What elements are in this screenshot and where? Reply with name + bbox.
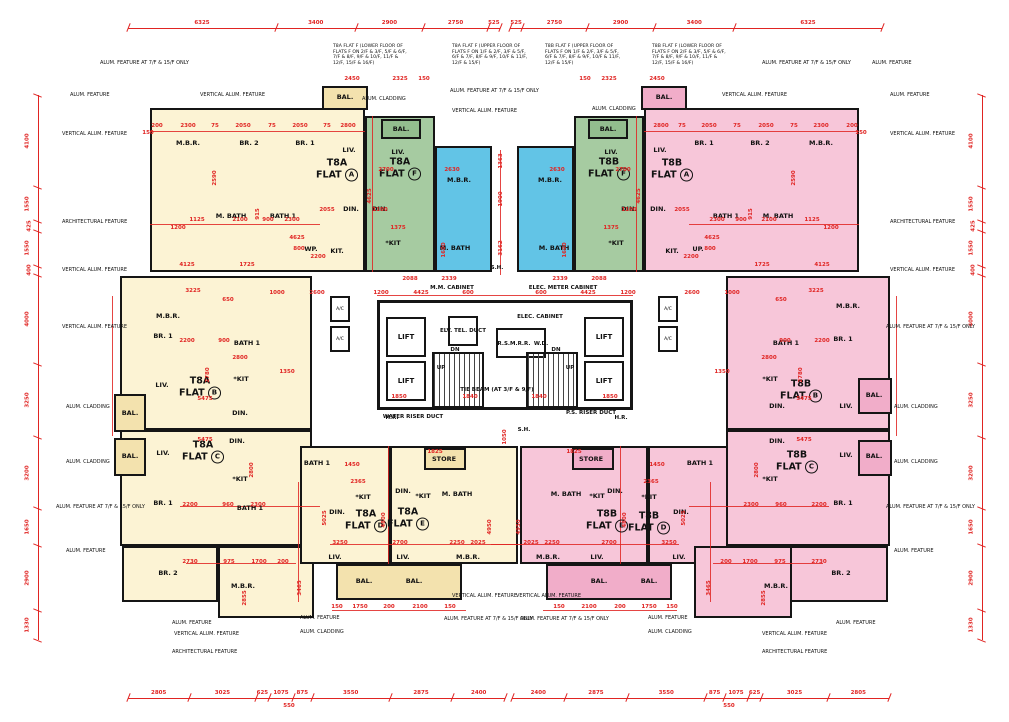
edge-dim-segment: 2400 bbox=[512, 684, 565, 699]
room-label: BAL. bbox=[591, 577, 608, 585]
dimension-number: 2055 bbox=[319, 207, 334, 213]
core-label: TIE BEAM (AT 3/F & 9/F) bbox=[460, 387, 533, 393]
feature-note: ALUM. FEATURE AT 7/F & 15/F ONLY bbox=[520, 616, 609, 622]
edge-dim-value: 875 bbox=[297, 690, 308, 696]
dimension-line bbox=[644, 131, 859, 132]
core-label: W.D. bbox=[534, 341, 548, 347]
dimension-number: 3250 bbox=[661, 540, 676, 546]
dimension-number: 2800 bbox=[340, 123, 355, 129]
edge-dim-segment: 2805 bbox=[828, 684, 889, 699]
dimension-line bbox=[112, 296, 113, 436]
feature-note: ALUM. FEATURE bbox=[300, 615, 340, 621]
room-label: BAL. bbox=[337, 93, 354, 101]
feature-note: VERTICAL ALUM. FEATURE bbox=[452, 108, 517, 114]
dimension-number: 4625 bbox=[367, 188, 373, 203]
dimension-number: 2088 bbox=[591, 276, 606, 282]
room-label: BAL. bbox=[356, 577, 373, 585]
dimension-number: 2200 bbox=[683, 254, 698, 260]
edge-dim-value: 2900 bbox=[613, 20, 628, 26]
edge-dim-segment: 400 bbox=[24, 266, 39, 275]
ac-unit-box: A/C bbox=[330, 326, 350, 352]
dimension-number: 1375 bbox=[390, 225, 405, 231]
feature-note: ARCHITECTURAL FEATURE bbox=[890, 219, 955, 225]
dimension-number: 1350 bbox=[714, 369, 729, 375]
edge-dim-segment: 2875 bbox=[565, 684, 628, 699]
room-label: DIN. bbox=[232, 409, 248, 417]
feature-note: ALUM. CLADDING bbox=[300, 629, 344, 635]
flat-name: T8B bbox=[776, 451, 818, 461]
edge-dim-segment: 3400 bbox=[654, 14, 734, 29]
edge-dim-segment: 2805 bbox=[128, 684, 189, 699]
room-label: BAL. bbox=[393, 125, 410, 133]
dimension-number: 150 bbox=[142, 130, 153, 136]
dimension-number: 150 bbox=[666, 604, 677, 610]
edge-dim-segment: 1075 bbox=[724, 684, 748, 699]
dimension-number: 975 bbox=[223, 559, 234, 565]
feature-note: VERTICAL ALUM. FEATURE bbox=[722, 92, 787, 98]
feature-note: ALUM. FEATURE bbox=[70, 92, 110, 98]
feature-note: ALUM. FEATURE AT 7/F & 15/F ONLY bbox=[762, 60, 851, 66]
dimension-number: 650 bbox=[775, 297, 786, 303]
dimension-number: 2050 bbox=[701, 123, 716, 129]
dimension-number: 75 bbox=[678, 123, 686, 129]
dimension-number: 2590 bbox=[791, 170, 797, 185]
room-label: LIV. bbox=[342, 146, 355, 154]
room-label: LIV. bbox=[590, 553, 603, 561]
room-label: BR. 1 bbox=[833, 335, 852, 343]
edge-dim-segment: 625 bbox=[256, 684, 270, 699]
edge-dim-segment: 2900 bbox=[356, 14, 424, 29]
dimension-line bbox=[491, 544, 679, 545]
edge-dim-value: 4000 bbox=[24, 312, 30, 327]
dimension-number: 2339 bbox=[552, 276, 567, 282]
dimension-number: 1125 bbox=[189, 217, 204, 223]
feature-note: ALUM. FEATURE AT 7/F & 15/F ONLY bbox=[886, 504, 975, 510]
room-label: LIV. bbox=[391, 148, 404, 156]
edge-dimension-strip: 4100155042515504004000325032001650290013… bbox=[24, 95, 38, 640]
dimension-number: 2450 bbox=[344, 76, 359, 82]
feature-note: VERTICAL ALUM. FEATURE bbox=[62, 324, 127, 330]
edge-dim-value: 1550 bbox=[968, 241, 974, 256]
dimension-number: 1000 bbox=[269, 290, 284, 296]
room-label: BAL. bbox=[122, 409, 139, 417]
edge-dim-value: 625 bbox=[749, 690, 760, 696]
room-label: BR. 2 bbox=[750, 139, 769, 147]
room-label: M.B.R. bbox=[156, 312, 180, 320]
feature-note: VERTICAL ALUM. FEATURE bbox=[516, 593, 581, 599]
dimension-number: 2590 bbox=[212, 170, 218, 185]
dimension-number: 2250 bbox=[544, 540, 559, 546]
edge-dim-value: 6325 bbox=[194, 20, 209, 26]
edge-dim-value: 1330 bbox=[968, 617, 974, 632]
feature-note: ALUM. FEATURE bbox=[648, 615, 688, 621]
ac-unit-box: A/C bbox=[658, 326, 678, 352]
edge-dim-value: 4100 bbox=[24, 133, 30, 148]
ac-unit-box: A/C bbox=[658, 296, 678, 322]
room-label: UP. bbox=[692, 245, 703, 253]
dimension-number: 1450 bbox=[649, 462, 664, 468]
feature-note: ALUM. FEATURE bbox=[894, 548, 934, 554]
dimension-number: 1375 bbox=[603, 225, 618, 231]
dimension-number: 1100 bbox=[372, 207, 387, 213]
room-label: *KIT bbox=[355, 493, 370, 501]
dimension-line bbox=[330, 544, 518, 545]
flat-f-floor-note: T8B FLAT F (LOWER FLOOR OF FLATS F ON 2/… bbox=[652, 44, 730, 67]
dimension-number: 75 bbox=[211, 123, 219, 129]
edge-dim-segment: 2900 bbox=[968, 545, 983, 610]
room-label: LIV. bbox=[839, 451, 852, 459]
dimension-number: 2200 bbox=[179, 338, 194, 344]
feature-note: ALUM. FEATURE bbox=[836, 620, 876, 626]
core-label: R.S.M.R.R. bbox=[498, 341, 531, 347]
dimension-number: 550 bbox=[283, 703, 294, 709]
dimension-number: 1000 bbox=[724, 290, 739, 296]
dimension-number: 200 bbox=[277, 559, 288, 565]
edge-dim-value: 2750 bbox=[448, 20, 463, 26]
dimension-number: 2630 bbox=[444, 167, 459, 173]
edge-dimension-strip: 4100155042515504004000325032001650290013… bbox=[968, 95, 982, 640]
edge-dim-value: 3200 bbox=[24, 465, 30, 480]
edge-dim-segment: 3550 bbox=[627, 684, 705, 699]
edge-dim-segment: 1550 bbox=[968, 187, 983, 222]
dimension-line bbox=[150, 131, 365, 132]
flat-letter-badge: F bbox=[408, 167, 421, 180]
edge-dim-segment: 3400 bbox=[276, 14, 356, 29]
room-label: *KIT bbox=[589, 492, 604, 500]
dimension-number: 915 bbox=[748, 208, 754, 219]
edge-dim-value: 3025 bbox=[215, 690, 230, 696]
room-label: DIN. bbox=[343, 205, 359, 213]
feature-note: ALUM. FEATURE bbox=[872, 60, 912, 66]
dimension-number: 75 bbox=[733, 123, 741, 129]
dimension-number: 1750 bbox=[641, 604, 656, 610]
room-label: M.B.R. bbox=[176, 139, 200, 147]
feature-note: ALUM. CLADDING bbox=[66, 459, 110, 465]
dimension-number: 1725 bbox=[754, 262, 769, 268]
dimension-number: 800 bbox=[293, 246, 304, 252]
dimension-number: 2730 bbox=[811, 559, 826, 565]
dimension-number: 2100 bbox=[232, 217, 247, 223]
dimension-number: 2600 bbox=[684, 290, 699, 296]
flat-letter-badge: D bbox=[657, 521, 670, 534]
dimension-number: 2300 bbox=[284, 217, 299, 223]
room-label: M.B.R. bbox=[836, 302, 860, 310]
feature-note: ALUM. CLADDING bbox=[894, 459, 938, 465]
dimension-number: 2700 bbox=[601, 540, 616, 546]
dimension-number: 5475 bbox=[197, 396, 212, 402]
room-label: M. BATH bbox=[551, 490, 582, 498]
dimension-number: 915 bbox=[255, 208, 261, 219]
feature-note: ARCHITECTURAL FEATURE bbox=[172, 649, 237, 655]
dimension-number: 2780 bbox=[205, 367, 211, 382]
dimension-number: 2050 bbox=[758, 123, 773, 129]
room-label: BR. 2 bbox=[239, 139, 258, 147]
dimension-number: 2630 bbox=[549, 167, 564, 173]
dimension-number: 2300 bbox=[250, 502, 265, 508]
room-label: BR. 1 bbox=[694, 139, 713, 147]
room-label: DIN. bbox=[650, 205, 666, 213]
dimension-number: 2700 bbox=[615, 167, 630, 173]
dimension-number: 3465 bbox=[297, 580, 303, 595]
flat-letter-badge: C bbox=[805, 460, 818, 473]
room-label: BATH 1 bbox=[234, 339, 260, 347]
edge-dim-value: 2900 bbox=[382, 20, 397, 26]
room-label: *KIT bbox=[762, 375, 777, 383]
dimension-number: 5025 bbox=[681, 510, 687, 525]
dimension-number: 960 bbox=[775, 502, 786, 508]
edge-dim-value: 1650 bbox=[968, 519, 974, 534]
dimension-number: 975 bbox=[774, 559, 785, 565]
dimension-number: 200 bbox=[720, 559, 731, 565]
dimension-number: 2700 bbox=[378, 167, 393, 173]
feature-note: ALUM. FEATURE AT 7/F & 15/F ONLY bbox=[450, 88, 539, 94]
core-label: DN bbox=[551, 347, 560, 353]
dimension-number: 150 bbox=[331, 604, 342, 610]
edge-dim-value: 2805 bbox=[151, 690, 166, 696]
dimension-number: 800 bbox=[704, 246, 715, 252]
room-label: BR. 1 bbox=[833, 499, 852, 507]
room-label: LIV. bbox=[672, 553, 685, 561]
room-label: M.B.R. bbox=[456, 553, 480, 561]
edge-dim-value: 2875 bbox=[413, 690, 428, 696]
flat-label: T8BFLAT A bbox=[651, 159, 693, 182]
edge-dim-value: 2750 bbox=[547, 20, 562, 26]
dimension-number: 5475 bbox=[197, 437, 212, 443]
dimension-number: 150 bbox=[444, 604, 455, 610]
feature-note: ARCHITECTURAL FEATURE bbox=[762, 649, 827, 655]
room-label: KIT. bbox=[330, 247, 343, 255]
edge-dim-segment: 6325 bbox=[128, 14, 276, 29]
edge-dim-segment: 1550 bbox=[24, 187, 39, 222]
dimension-number: 2200 bbox=[814, 338, 829, 344]
edge-dim-value: 1075 bbox=[728, 690, 743, 696]
edge-dim-segment: 2900 bbox=[587, 14, 655, 29]
dimension-line bbox=[620, 446, 621, 564]
dimension-number: 4625 bbox=[289, 235, 304, 241]
dimension-number: 75 bbox=[790, 123, 798, 129]
dimension-number: 5475 bbox=[796, 396, 811, 402]
edge-dim-segment: 1650 bbox=[968, 508, 983, 545]
dimension-number: 1850 bbox=[391, 394, 406, 400]
dimension-number: 4800 bbox=[622, 512, 628, 527]
dimension-number: 1840 bbox=[462, 394, 477, 400]
dimension-number: 2800 bbox=[754, 462, 760, 477]
feature-note: VERTICAL ALUM. FEATURE bbox=[62, 267, 127, 273]
room-label: DIN. bbox=[607, 487, 623, 495]
core-label: S.H. bbox=[491, 265, 504, 271]
feature-note: VERTICAL ALUM. FEATURE bbox=[174, 631, 239, 637]
dimension-number: 1363 bbox=[498, 153, 504, 168]
edge-dim-segment: 2875 bbox=[390, 684, 453, 699]
dimension-number: 2300 bbox=[180, 123, 195, 129]
dimension-number: 1125 bbox=[804, 217, 819, 223]
dimension-number: 2100 bbox=[581, 604, 596, 610]
edge-dim-value: 2400 bbox=[471, 690, 486, 696]
core-label: DN bbox=[450, 347, 459, 353]
flat-letter-badge: A bbox=[345, 168, 358, 181]
edge-dim-value: 2875 bbox=[588, 690, 603, 696]
room-label: BR. 1 bbox=[153, 332, 172, 340]
edge-dim-segment: 425 bbox=[968, 221, 983, 231]
dimension-number: 2200 bbox=[182, 502, 197, 508]
edge-dim-segment: 400 bbox=[968, 266, 983, 275]
edge-dim-segment: 3250 bbox=[24, 364, 39, 437]
dimension-number: 2325 bbox=[601, 76, 616, 82]
dimension-number: 2600 bbox=[309, 290, 324, 296]
flat-word: FLAT A bbox=[316, 168, 358, 181]
feature-note: ALUM. CLADDING bbox=[648, 629, 692, 635]
room-label: KIT. bbox=[665, 247, 678, 255]
lift-box: LIFT bbox=[386, 317, 426, 357]
dimension-number: 2025 bbox=[470, 540, 485, 546]
edge-dim-value: 6325 bbox=[800, 20, 815, 26]
room-label: BAL. bbox=[866, 391, 883, 399]
dimension-number: 75 bbox=[268, 123, 276, 129]
room-label: STORE bbox=[579, 455, 603, 463]
edge-dim-segment: 2400 bbox=[452, 684, 505, 699]
dimension-number: 650 bbox=[222, 297, 233, 303]
dimension-number: 900 bbox=[735, 217, 746, 223]
dimension-number: 2800 bbox=[761, 355, 776, 361]
room-label: BAL. bbox=[656, 93, 673, 101]
dimension-number: 150 bbox=[553, 604, 564, 610]
core-label: S.H. bbox=[518, 427, 531, 433]
edge-dim-segment: 6325 bbox=[734, 14, 882, 29]
dimension-line bbox=[388, 446, 389, 564]
dimension-number: 2325 bbox=[392, 76, 407, 82]
room-label: M.B.R. bbox=[536, 553, 560, 561]
edge-dim-segment: 3200 bbox=[24, 437, 39, 509]
dimension-number: 4950 bbox=[516, 519, 522, 534]
edge-dim-segment: 1075 bbox=[269, 684, 293, 699]
feature-note: VERTICAL ALUM. FEATURE bbox=[452, 593, 517, 599]
room-label: *KIT bbox=[232, 475, 247, 483]
flat-name: T8B bbox=[588, 158, 630, 168]
floor-plan: A/CA/CA/CA/CLIFTLIFTLIFTLIFT 63253400290… bbox=[0, 0, 1009, 722]
dimension-number: 2365 bbox=[350, 479, 365, 485]
room-label: DIN. bbox=[329, 508, 345, 516]
room-label: BATH 1 bbox=[304, 459, 330, 467]
edge-dimension-strip: 280530256251075875355028752400 bbox=[128, 684, 505, 698]
dimension-number: 2300 bbox=[813, 123, 828, 129]
feature-note: ALUM. FEATURE AT 7/F & 15/F ONLY bbox=[56, 504, 145, 510]
dimension-number: 4800 bbox=[381, 512, 387, 527]
feature-note: VERTICAL ALUM. FEATURE bbox=[62, 131, 127, 137]
dimension-number: 200 bbox=[151, 123, 162, 129]
dimension-number: 1200 bbox=[620, 290, 635, 296]
edge-dim-value: 4100 bbox=[968, 133, 974, 148]
room-label: DIN. bbox=[229, 437, 245, 445]
dimension-number: 2055 bbox=[674, 207, 689, 213]
room-label: BAL. bbox=[866, 452, 883, 460]
dimension-number: 1450 bbox=[344, 462, 359, 468]
edge-dim-segment: 3025 bbox=[761, 684, 827, 699]
room-label: M.B.R. bbox=[538, 176, 562, 184]
flat-f-floor-note: T8A FLAT F (LOWER FLOOR OF FLATS F ON 2/… bbox=[333, 44, 411, 67]
flat-name: T8B bbox=[651, 159, 693, 169]
feature-note: VERTICAL ALUM. FEATURE bbox=[200, 92, 265, 98]
dimension-number: 4625 bbox=[636, 188, 642, 203]
dimension-number: 1200 bbox=[373, 290, 388, 296]
flat-word: FLAT C bbox=[182, 450, 224, 463]
edge-dimension-strip: 5252750290034006325 bbox=[510, 14, 882, 28]
room-label: *KIT bbox=[415, 492, 430, 500]
dimension-number: 3250 bbox=[332, 540, 347, 546]
dimension-number: 2855 bbox=[242, 590, 248, 605]
dimension-number: 1825 bbox=[427, 449, 442, 455]
edge-dim-value: 3400 bbox=[308, 20, 323, 26]
room-label: BR. 2 bbox=[831, 569, 850, 577]
dimension-number: 2100 bbox=[761, 217, 776, 223]
dimension-number: 600 bbox=[535, 290, 546, 296]
dimension-number: 4950 bbox=[487, 519, 493, 534]
edge-dim-segment: 875 bbox=[293, 684, 312, 699]
edge-dim-value: 875 bbox=[709, 690, 720, 696]
edge-dim-value: 2805 bbox=[851, 690, 866, 696]
core-label: ELEC. CABINET bbox=[517, 314, 563, 320]
dimension-number: 3225 bbox=[185, 288, 200, 294]
flat-label: T8BFLAT C bbox=[776, 451, 818, 474]
dimension-number: 2780 bbox=[798, 367, 804, 382]
ac-unit-box: A/C bbox=[330, 296, 350, 322]
dimension-number: 1350 bbox=[279, 369, 294, 375]
edge-dimension-strip: 6325340029002750525 bbox=[128, 14, 500, 28]
dimension-number: 2855 bbox=[761, 590, 767, 605]
dimension-number: 150 bbox=[418, 76, 429, 82]
dimension-number: 200 bbox=[846, 123, 857, 129]
core-label: P.S. RISER DUCT bbox=[566, 410, 616, 416]
dimension-number: 4425 bbox=[580, 290, 595, 296]
room-label: BR. 1 bbox=[295, 139, 314, 147]
flat-letter-badge: A bbox=[680, 168, 693, 181]
room-label: BATH 1 bbox=[687, 459, 713, 467]
dimension-number: 900 bbox=[262, 217, 273, 223]
edge-dim-value: 1550 bbox=[24, 241, 30, 256]
edge-dim-value: 3200 bbox=[968, 465, 974, 480]
flat-label: T8AFLAT E bbox=[387, 508, 429, 531]
flat-name: T8A bbox=[387, 508, 429, 518]
flat-name: T8A bbox=[316, 159, 358, 169]
dimension-number: 1840 bbox=[531, 394, 546, 400]
room-label: *KIT bbox=[608, 239, 623, 247]
room-label: DIN. bbox=[769, 437, 785, 445]
edge-dim-segment: 1330 bbox=[24, 610, 39, 640]
edge-dim-value: 2900 bbox=[968, 570, 974, 585]
dimension-number: 2450 bbox=[649, 76, 664, 82]
edge-dim-value: 3400 bbox=[687, 20, 702, 26]
edge-dim-value: 1650 bbox=[24, 519, 30, 534]
room-label: *KIT bbox=[233, 375, 248, 383]
dimension-number: 2088 bbox=[402, 276, 417, 282]
room-label: *KIT bbox=[385, 239, 400, 247]
dimension-number: 1200 bbox=[170, 225, 185, 231]
dimension-number: 4125 bbox=[179, 262, 194, 268]
room-label: *KIT bbox=[641, 493, 656, 501]
dimension-number: 200 bbox=[614, 604, 625, 610]
feature-note: ALUM. CLADDING bbox=[592, 106, 636, 112]
room-label: STORE bbox=[432, 455, 456, 463]
feature-note: ALUM. FEATURE bbox=[890, 92, 930, 98]
edge-dim-segment: 2750 bbox=[423, 14, 487, 29]
dimension-number: 5025 bbox=[322, 510, 328, 525]
room-label: M.B.R. bbox=[764, 582, 788, 590]
edge-dim-segment: 875 bbox=[705, 684, 724, 699]
edge-dim-segment: 3250 bbox=[968, 364, 983, 437]
edge-dim-value: 3550 bbox=[343, 690, 358, 696]
flat-f-floor-note: T8B FLAT F (UPPER FLOOR OF FLATS F ON 1/… bbox=[545, 44, 623, 67]
dimension-number: 2365 bbox=[643, 479, 658, 485]
dimension-number: 1700 bbox=[742, 559, 757, 565]
